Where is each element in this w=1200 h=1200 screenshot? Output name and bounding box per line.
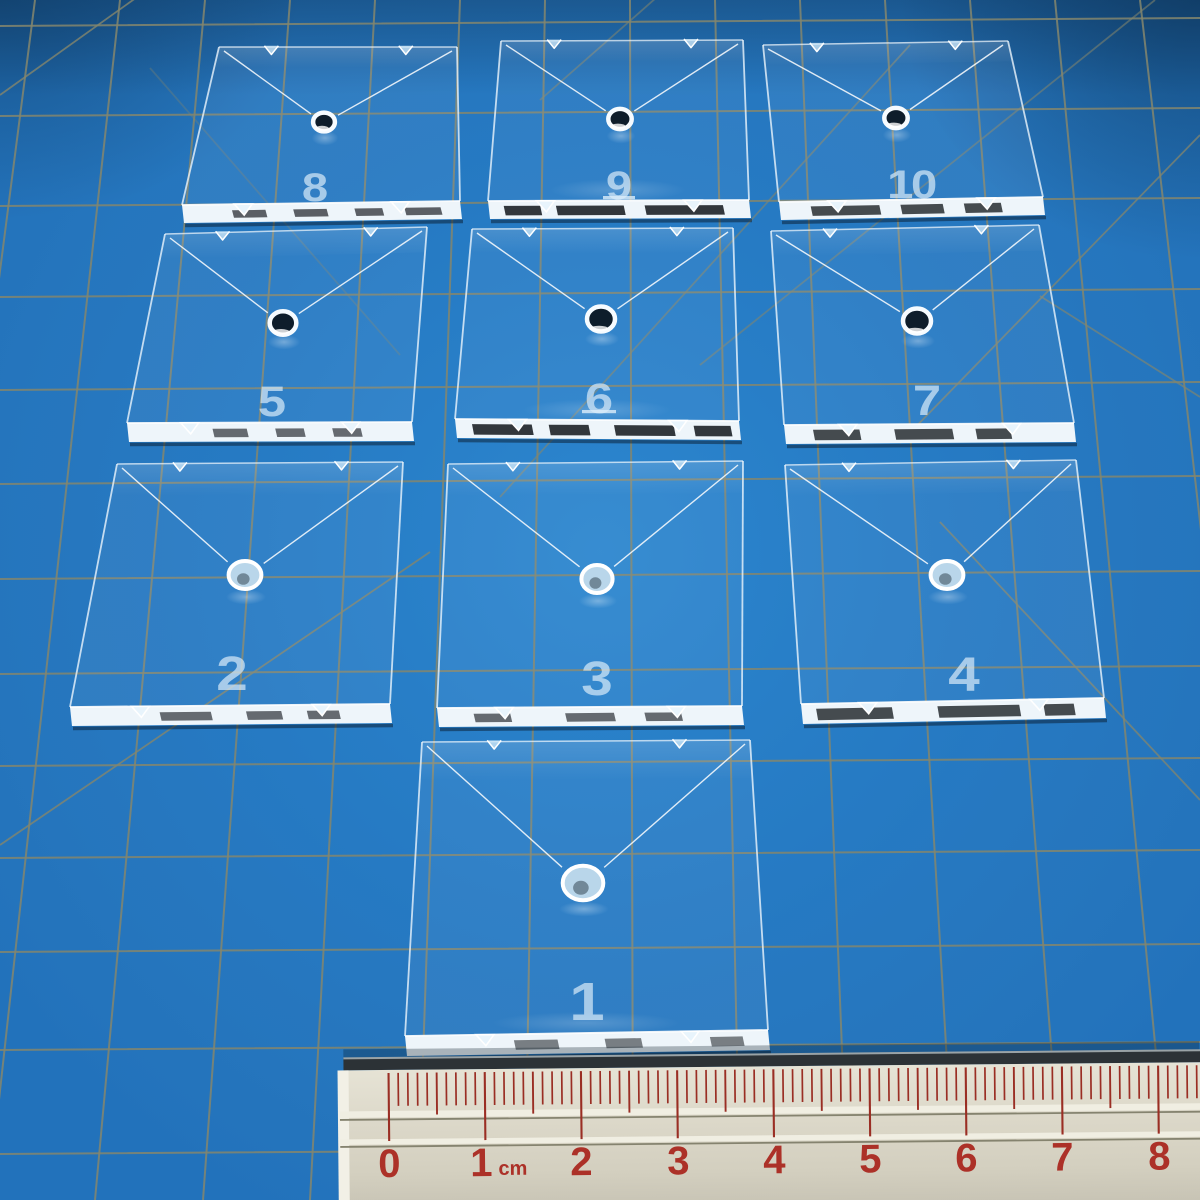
svg-text:3: 3 — [667, 1139, 690, 1183]
svg-text:8: 8 — [1148, 1134, 1171, 1178]
svg-text:7: 7 — [913, 376, 941, 424]
svg-text:3: 3 — [581, 652, 613, 706]
svg-text:1: 1 — [470, 1141, 493, 1185]
svg-text:6: 6 — [955, 1136, 978, 1180]
svg-text:2: 2 — [570, 1140, 593, 1184]
svg-text:2: 2 — [216, 647, 248, 701]
svg-text:7: 7 — [1051, 1135, 1074, 1179]
svg-text:4: 4 — [763, 1138, 786, 1182]
svg-text:5: 5 — [258, 377, 286, 425]
svg-text:9: 9 — [606, 163, 632, 208]
svg-text:5: 5 — [859, 1137, 882, 1181]
svg-text:1: 1 — [569, 972, 604, 1032]
svg-text:4: 4 — [948, 648, 980, 702]
svg-text:10: 10 — [887, 162, 936, 207]
svg-text:8: 8 — [302, 165, 328, 210]
svg-text:0: 0 — [378, 1142, 401, 1186]
svg-text:6: 6 — [585, 374, 613, 422]
svg-text:cm: cm — [498, 1158, 527, 1180]
